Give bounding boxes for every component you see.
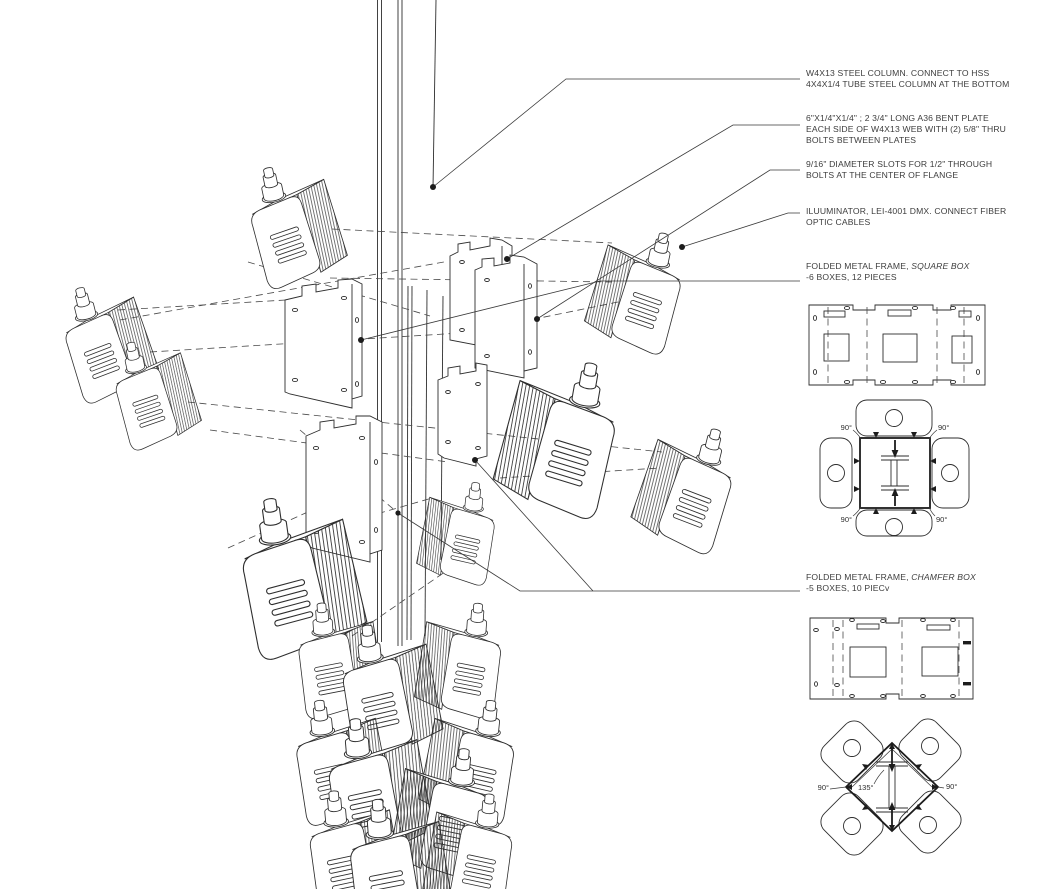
square-plan-angle-br: 90° (936, 515, 947, 524)
leader-illuminator (679, 213, 800, 250)
leader-bent-plate (504, 125, 800, 262)
callout-square-box-count: -6 BOXES, 12 PIECES (806, 272, 897, 282)
illuminator-box (626, 414, 743, 556)
callout-bent-plate: 6"X1/4"X1/4" ; 2 3/4" LONG A36 BENT PLAT… (806, 113, 1042, 146)
callout-chamfer-box-name: CHAMFER BOX (911, 572, 976, 582)
illuminator-box (581, 221, 691, 357)
chamfer-plan-angle-inner: 135° (858, 783, 874, 792)
callout-slots: 9/16" DIAMETER SLOTS FOR 1/2" THROUGH BO… (806, 159, 1042, 181)
illuminator-fixtures (55, 155, 744, 556)
callout-square-box-name: SQUARE BOX (911, 261, 969, 271)
detail-chamfer-plan: 90° 90° 135° (816, 714, 966, 860)
chamfer-frame-plate (438, 363, 487, 466)
chamfer-plan-angle-right: 90° (946, 782, 957, 791)
illuminator-box (489, 350, 625, 521)
chamfer-plan-angle-left: 90° (818, 783, 829, 792)
callout-chamfer-box-count: -5 BOXES, 10 PIECv (806, 583, 889, 593)
square-frame-plate-right (450, 238, 537, 378)
square-frame-plate-left (285, 279, 362, 408)
callout-chamfer-box: FOLDED METAL FRAME, CHAMFER BOX -5 BOXES… (806, 572, 1042, 594)
detail-chamfer-flat-pattern (810, 618, 973, 699)
callout-square-box-prefix: FOLDED METAL FRAME, (806, 261, 911, 271)
detail-square-plan: 90° 90° 90° 90° (820, 400, 969, 536)
callout-chamfer-box-prefix: FOLDED METAL FRAME, (806, 572, 911, 582)
square-plan-angle-bl: 90° (841, 515, 852, 524)
callout-illuminator: ILUUMINATOR, LEI-4001 DMX. CONNECT FIBER… (806, 206, 1042, 228)
leader-column (430, 79, 800, 190)
square-plan-angle-tr: 90° (938, 423, 949, 432)
leader-square-box (358, 281, 800, 343)
illuminator-box (241, 155, 351, 291)
shop-drawing-sheet: 90° 90° 90° 90° (0, 0, 1044, 889)
callout-steel-column: W4X13 STEEL COLUMN. CONNECT TO HSS 4X4X1… (806, 68, 1042, 90)
detail-square-flat-pattern (809, 305, 985, 385)
square-plan-angle-tl: 90° (841, 423, 852, 432)
callout-square-box: FOLDED METAL FRAME, SQUARE BOX -6 BOXES,… (806, 261, 1042, 283)
